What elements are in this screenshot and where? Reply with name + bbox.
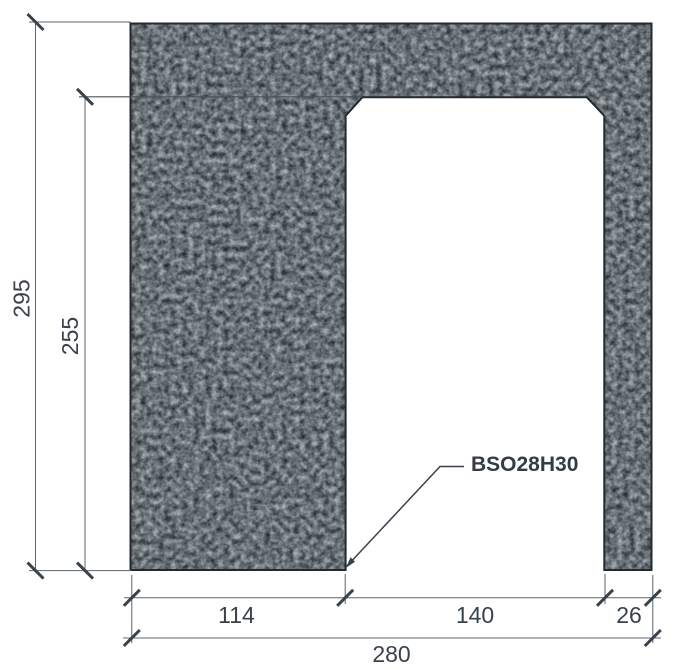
svg-text:280: 280 xyxy=(372,641,410,667)
svg-text:295: 295 xyxy=(9,279,35,317)
svg-text:BSO28H30: BSO28H30 xyxy=(471,453,578,476)
svg-text:26: 26 xyxy=(616,602,642,628)
svg-text:255: 255 xyxy=(57,317,83,355)
svg-text:140: 140 xyxy=(456,602,494,628)
svg-text:114: 114 xyxy=(218,602,255,628)
